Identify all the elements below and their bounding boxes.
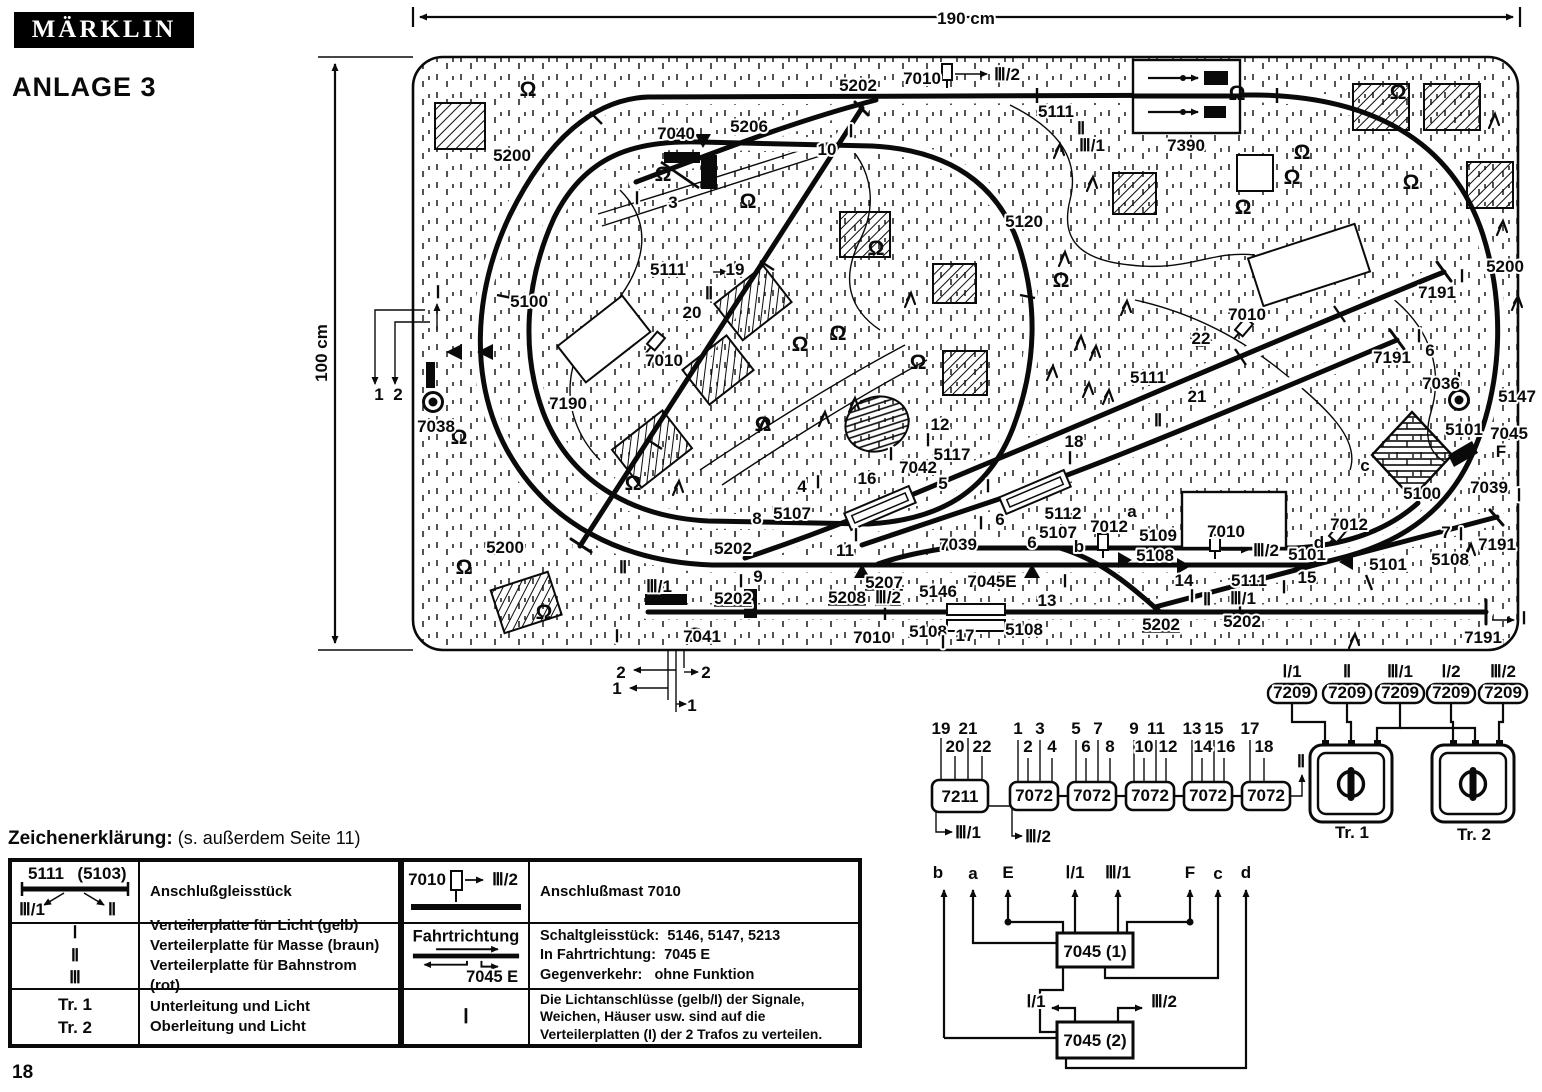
diagram-label: 7040 [657, 124, 695, 143]
diagram-label: 5107 [773, 504, 811, 523]
legend-desc-schaltgleis: Schaltgleisstück: 5146, 5147, 5213 In Fa… [529, 923, 859, 989]
diagram-label: 7209 [1432, 683, 1470, 702]
diagram-label: 17 [956, 626, 975, 645]
svg-text:(5103): (5103) [77, 867, 126, 883]
svg-text:5111: 5111 [28, 867, 64, 883]
diagram-label: 6 [995, 510, 1004, 529]
diagram-label: 15 [1298, 568, 1317, 587]
diagram-label: 7039 [939, 535, 977, 554]
diagram-label: 7010 [853, 628, 891, 647]
diagram-label: Ⅲ/1 [646, 577, 672, 596]
diagram-label: Ⅱ [1154, 411, 1162, 430]
diagram-label: b [1074, 537, 1084, 556]
diagram-label: 5111 [1038, 102, 1074, 121]
diagram-label: 5202 [714, 589, 752, 608]
diagram-label: 2 [393, 385, 402, 404]
diagram-label: F [1185, 863, 1195, 882]
diagram-label: 7 [1093, 719, 1102, 738]
diagram-label: 5111 [1231, 571, 1267, 590]
legend-desc-anschlussgleis: Anschlußgleisstück [139, 861, 399, 923]
diagram-label: Ⅰ [888, 445, 893, 464]
transformer-tr2 [1432, 745, 1514, 822]
diagram-label: 7209 [1328, 683, 1366, 702]
diagram-label: Ⅰ [1516, 486, 1521, 505]
diagram-label: Ⅲ/2 [1253, 541, 1279, 560]
diagram-label: 5202 [839, 76, 877, 95]
diagram-label: 7209 [1484, 683, 1522, 702]
diagram-label: Ⅲ/2 [1151, 992, 1177, 1011]
diagram-label: 6 [1425, 341, 1434, 360]
diagram-label: 21 [1188, 387, 1207, 406]
diagram-label: 7072 [1015, 786, 1053, 805]
legend-heading: Zeichenerklärung: (s. außerdem Seite 11) [8, 828, 360, 850]
diagram-label: 5 [1071, 719, 1080, 738]
diagram-label: Ⅲ/2 [994, 65, 1020, 84]
diagram-label: 1 [612, 679, 621, 698]
diagram-label: Ⅲ/1 [1079, 136, 1105, 155]
diagram-label: Ⅰ [1067, 449, 1072, 468]
diagram-label: 7191 [1464, 628, 1502, 647]
diagram-label: Ⅰ [634, 189, 639, 208]
diagram-label: 5202 [1223, 612, 1261, 631]
diagram-label: 7072 [1073, 786, 1111, 805]
wiring-labels: 1920212212345678910111213141516171872117… [932, 662, 1522, 1050]
diagram-label: 5 [938, 474, 947, 493]
diagram-label: Ⅰ/1 [1282, 662, 1301, 681]
diagram-label: 1 [1013, 719, 1022, 738]
diagram-label: Ⅰ [940, 633, 945, 652]
diagram-label: 10 [818, 140, 837, 159]
diagram-label: Ⅰ [1189, 587, 1194, 606]
diagram-label: 7010 [645, 351, 683, 370]
svg-text:100 cm: 100 cm [312, 324, 331, 382]
legend-key-licht: Ⅰ [403, 989, 529, 1045]
diagram-label: 5147 [1498, 387, 1536, 406]
diagram-label: 7191 [1478, 535, 1516, 554]
diagram-label: 7012 [1330, 515, 1368, 534]
diagram-label: Ⅲ/1 [955, 823, 981, 842]
diagram-label: b [933, 863, 943, 882]
diagram-label: 5101 [1369, 555, 1407, 574]
diagram-label: 16 [1217, 737, 1236, 756]
diagram-label: 5111 [650, 260, 686, 279]
diagram-label: Tr. 1 [1335, 823, 1369, 842]
diagram-label: 17 [1241, 719, 1260, 738]
legend-symbol-anschlussmast: 7010 Ⅲ/2 [403, 861, 529, 923]
diagram-label: 5100 [1403, 484, 1441, 503]
diagram-label: 7190 [549, 394, 587, 413]
svg-text:7010: 7010 [408, 870, 446, 889]
diagram-label: 5202 [714, 539, 752, 558]
diagram-label: Ⅲ/1 [1105, 863, 1131, 882]
track-plan-diagram: 190 cm 100 cm [0, 0, 1542, 760]
diagram-label: 12 [1159, 737, 1178, 756]
diagram-label: 19 [932, 719, 951, 738]
diagram-label: 9 [1129, 719, 1138, 738]
diagram-label: 5111 [1130, 368, 1166, 387]
diagram-label: 7209 [1273, 683, 1311, 702]
legend-desc-anschlussmast: Anschlußmast 7010 [529, 861, 859, 923]
diagram-label: 5117 [934, 445, 971, 464]
diagram-label: Ⅰ [853, 526, 858, 545]
diagram-label: 13 [1038, 591, 1057, 610]
diagram-label: 8 [1105, 737, 1114, 756]
diagram-label: 7072 [1189, 786, 1227, 805]
diagram-label: 7036 [1422, 374, 1460, 393]
diagram-label: 5208 [828, 588, 866, 607]
diagram-label: Ⅱ [1297, 752, 1305, 771]
diagram-label: c [1360, 456, 1369, 475]
dimension-width: 190 cm [413, 7, 1520, 28]
diagram-label: 7191 [1418, 283, 1456, 302]
diagram-label: 7012 [1090, 517, 1128, 536]
diagram-label: Ⅲ/1 [1387, 662, 1413, 681]
diagram-label: 7039 [1470, 478, 1508, 497]
diagram-label: 7390 [1167, 136, 1205, 155]
legend-table-right: 7010 Ⅲ/2 Anschlußmast 7010 Fahrtrichtung… [400, 858, 862, 1048]
diagram-label: 7045 (2) [1063, 1031, 1126, 1050]
diagram-label: 5206 [730, 117, 768, 136]
diagram-label: Ⅱ [619, 558, 627, 577]
diagram-label: Ⅰ [435, 283, 440, 302]
diagram-label: 7010 [903, 69, 941, 88]
diagram-label: Ⅰ/1 [1026, 992, 1045, 1011]
diagram-label: 11 [836, 541, 854, 560]
diagram-label: 5100 [510, 292, 548, 311]
diagram-label: 7191 [1373, 348, 1411, 367]
diagram-label: Ⅰ [1458, 525, 1463, 544]
legend-table-left: 5111 (5103) Ⅲ/1 Ⅱ Anschlußgleisstück ⅠⅡⅢ… [8, 858, 402, 1048]
diagram-label: Ⅰ [614, 627, 619, 646]
transformer-tr1 [1310, 745, 1392, 822]
svg-text:Ⅱ: Ⅱ [108, 900, 116, 917]
diagram-label: 21 [959, 719, 978, 738]
legend-keys-trafos: Tr. 1Tr. 2 [11, 989, 139, 1045]
svg-text:190 cm: 190 cm [937, 9, 995, 28]
diagram-label: 7010 [1207, 522, 1245, 541]
diagram-label: 14 [1194, 737, 1213, 756]
diagram-label: Ⅰ [1459, 267, 1464, 286]
diagram-label: 5146 [919, 582, 957, 601]
diagram-label: 20 [946, 737, 965, 756]
diagram-label: Ⅰ [925, 431, 930, 450]
diagram-label: Ⅲ/2 [1025, 827, 1051, 846]
diagram-label: 5108 [1136, 546, 1174, 565]
diagram-label: 6 [1027, 533, 1036, 552]
diagram-label: Ⅰ/2 [1441, 662, 1460, 681]
legend-keys-verteilerplatten: ⅠⅡⅢ [11, 923, 139, 989]
diagram-label: 5200 [486, 538, 524, 557]
diagram-label: 5200 [493, 146, 531, 165]
diagram-label: Ⅰ [1062, 572, 1067, 591]
diagram-label: d [1241, 863, 1251, 882]
legend-symbol-anschlussgleis: 5111 (5103) Ⅲ/1 Ⅱ [11, 861, 139, 923]
diagram-label: 7045 (1) [1063, 942, 1126, 961]
tunnel-7390 [1133, 60, 1240, 133]
diagram-label: 5101 [1445, 420, 1483, 439]
svg-text:Fahrtrichtung: Fahrtrichtung [413, 928, 520, 946]
diagram-label: 16 [858, 469, 877, 488]
diagram-label: 11 [1147, 719, 1165, 738]
diagram-label: 5200 [1486, 257, 1524, 276]
diagram-label: d [1314, 533, 1324, 552]
diagram-label: 7038 [417, 417, 455, 436]
diagram-label: 2 [701, 663, 710, 682]
diagram-label: 20 [683, 303, 702, 322]
svg-text:Ⅲ/1: Ⅲ/1 [19, 900, 45, 917]
diagram-label: Ⅱ [1203, 590, 1211, 609]
diagram-label: Ⅰ [848, 122, 853, 141]
diagram-label: 3 [668, 193, 677, 212]
diagram-label: 7211 [942, 787, 979, 806]
dimension-height: 100 cm [312, 57, 413, 650]
diagram-label: 7072 [1247, 786, 1285, 805]
diagram-label: 7041 [683, 627, 721, 646]
diagram-label: 22 [1192, 329, 1211, 348]
diagram-label: a [1127, 502, 1137, 521]
diagram-label: c [1213, 864, 1222, 883]
diagram-label: 7042 [899, 458, 937, 477]
diagram-label: 7045E [967, 572, 1016, 591]
diagram-label: 22 [973, 737, 992, 756]
diagram-label: 7 [1441, 523, 1450, 542]
diagram-label: 1 [374, 385, 383, 404]
diagram-label: Ⅰ [978, 514, 983, 533]
diagram-label: Ⅲ/1 [1230, 589, 1256, 608]
diagram-label: 9 [753, 567, 762, 586]
diagram-label: 5108 [1005, 620, 1043, 639]
diagram-label: 5107 [1039, 523, 1077, 542]
diagram-label: 4 [797, 477, 807, 496]
diagram-label: Ⅲ/2 [1490, 662, 1516, 681]
diagram-label: Ⅰ/1 [1065, 863, 1084, 882]
diagram-label: 1 [687, 696, 696, 715]
wiring-diagram: 1920212212345678910111213141516171872117… [900, 660, 1542, 1092]
diagram-label: F [1496, 442, 1506, 461]
diagram-label: 5120 [1005, 212, 1043, 231]
diagram-label: 7010 [1228, 305, 1266, 324]
diagram-label: 5109 [1139, 526, 1177, 545]
svg-text:Ⅲ/2: Ⅲ/2 [492, 870, 518, 889]
legend-symbol-fahrtrichtung: Fahrtrichtung 7045 E [403, 923, 529, 989]
diagram-label: Tr. 2 [1457, 825, 1491, 844]
diagram-label: 7072 [1131, 786, 1169, 805]
diagram-label: 6 [1081, 737, 1090, 756]
diagram-label: 5108 [1431, 550, 1469, 569]
diagram-label: 5112 [1045, 504, 1082, 523]
diagram-label: a [968, 864, 978, 883]
legend-desc-licht: Die Lichtanschlüsse (gelb/I) der Signale… [529, 989, 859, 1045]
diagram-label: 18 [1255, 737, 1274, 756]
diagram-label: Ⅰ [1281, 578, 1286, 597]
diagram-label: Ⅱ [705, 284, 713, 303]
diagram-label: 15 [1205, 719, 1224, 738]
legend-desc-trafos: Unterleitung und LichtOberleitung und Li… [139, 989, 399, 1045]
diagram-label: 5202 [1142, 615, 1180, 634]
diagram-label: Ⅰ [985, 477, 990, 496]
diagram-label: Ⅰ [815, 473, 820, 492]
diagram-label: Ⅲ/2 [875, 588, 901, 607]
diagram-label: 3 [1035, 719, 1044, 738]
diagram-label: Ⅰ [1521, 609, 1526, 628]
diagram-label: 12 [931, 415, 950, 434]
diagram-label: Ⅰ [1416, 327, 1421, 346]
transformer-section [1268, 684, 1527, 822]
diagram-label: E [1002, 863, 1013, 882]
legend-desc-verteilerplatten: Verteilerplatte für Licht (gelb)Verteile… [139, 923, 399, 989]
diagram-label: 7209 [1381, 683, 1419, 702]
diagram-label: 7045 [1490, 424, 1528, 443]
diagram-label: Ⅱ [1343, 662, 1351, 681]
diagram-label: 10 [1135, 737, 1154, 756]
diagram-label: 2 [1023, 737, 1032, 756]
diagram-label: 4 [1047, 737, 1057, 756]
page-number: 18 [12, 1062, 33, 1084]
diagram-label: 19 [726, 260, 745, 279]
svg-text:7045 E: 7045 E [466, 968, 518, 984]
diagram-label: 8 [752, 509, 761, 528]
diagram-label: 13 [1183, 719, 1202, 738]
